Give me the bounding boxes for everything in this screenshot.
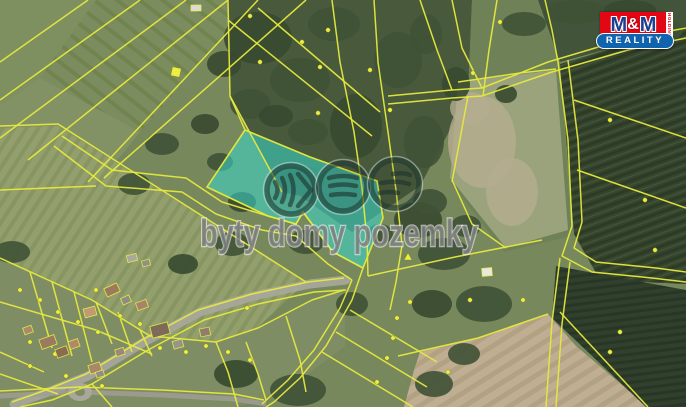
chevrons-icon bbox=[264, 163, 319, 218]
bars-icon bbox=[316, 160, 371, 215]
parcel-marker bbox=[375, 380, 379, 384]
tree-blob bbox=[502, 12, 546, 36]
icon-glyph bbox=[381, 182, 409, 184]
parcel-square-marker bbox=[171, 67, 182, 78]
logo-ampersand: & bbox=[626, 16, 640, 34]
parcel-marker bbox=[226, 350, 230, 354]
parcel-marker bbox=[471, 71, 475, 75]
parcel-marker bbox=[368, 68, 372, 72]
parcel-marker bbox=[388, 108, 392, 112]
logo-reality-text: REALITY bbox=[606, 36, 664, 46]
parcel-marker bbox=[28, 364, 32, 368]
parcel-marker bbox=[468, 298, 472, 302]
tree-blob bbox=[118, 173, 150, 195]
icon-glyph bbox=[329, 176, 357, 178]
parcel-marker bbox=[326, 28, 330, 32]
tree-blob bbox=[270, 374, 326, 406]
parcel-marker bbox=[118, 314, 122, 318]
parcel-marker bbox=[395, 316, 399, 320]
tree-blob bbox=[168, 254, 198, 274]
parcel-marker bbox=[245, 306, 249, 310]
logo-m-right: M bbox=[640, 15, 656, 35]
icon-ring bbox=[319, 163, 367, 211]
parcel-marker bbox=[608, 118, 612, 122]
tree-blob bbox=[191, 114, 219, 134]
watermark-layer bbox=[264, 157, 423, 218]
pale-soil-patch bbox=[486, 158, 538, 226]
parcel-marker bbox=[18, 288, 22, 292]
tree-blob bbox=[336, 292, 368, 316]
parcel-marker bbox=[521, 298, 525, 302]
tree-blob bbox=[259, 105, 293, 127]
building bbox=[199, 327, 210, 337]
parcel-marker bbox=[258, 60, 262, 64]
parcel-marker bbox=[184, 350, 188, 354]
parcel-marker bbox=[248, 358, 252, 362]
tree-blob bbox=[145, 133, 179, 155]
parcel-marker bbox=[56, 310, 60, 314]
parcel-marker bbox=[248, 14, 252, 18]
parcel-marker bbox=[96, 330, 100, 334]
parcel-marker bbox=[391, 336, 395, 340]
parcel-marker bbox=[94, 288, 98, 292]
watermark-text: byty domy pozemky bbox=[200, 213, 478, 255]
icon-glyph bbox=[275, 182, 278, 198]
tree-blob bbox=[448, 343, 480, 365]
parcel-marker bbox=[446, 370, 450, 374]
parcel-marker bbox=[408, 300, 412, 304]
parcel-marker bbox=[316, 111, 320, 115]
parcel-marker bbox=[138, 322, 142, 326]
parcel-marker bbox=[38, 298, 42, 302]
icon-glyph bbox=[331, 194, 355, 195]
layers-icon bbox=[368, 157, 423, 212]
parcel-marker bbox=[204, 344, 208, 348]
parcel-marker bbox=[64, 374, 68, 378]
parcel-marker bbox=[643, 198, 647, 202]
tree-blob bbox=[214, 360, 258, 388]
parcel-marker bbox=[608, 350, 612, 354]
logo-reality-ribbon: REALITY bbox=[596, 33, 674, 49]
tree-blob bbox=[412, 290, 452, 318]
building bbox=[482, 268, 493, 277]
tree-blob bbox=[288, 119, 328, 145]
parcel-marker bbox=[618, 330, 622, 334]
parcel-marker bbox=[158, 346, 162, 350]
logo-m-left: M bbox=[611, 15, 627, 35]
satellite-map-view[interactable]: byty domy pozemky M&M HOLDING REALITY bbox=[0, 0, 686, 407]
parcel-marker bbox=[318, 65, 322, 69]
icon-glyph bbox=[393, 173, 410, 175]
parcel-marker bbox=[653, 248, 657, 252]
parcel-marker bbox=[76, 320, 80, 324]
building bbox=[191, 5, 201, 11]
icon-glyph bbox=[330, 185, 356, 187]
parcel-marker bbox=[28, 340, 32, 344]
tree-blob bbox=[442, 67, 470, 101]
icon-ring bbox=[371, 160, 419, 208]
mm-reality-logo: M&M HOLDING REALITY bbox=[596, 12, 676, 54]
parcel-marker bbox=[100, 384, 104, 388]
tree-blob bbox=[456, 286, 512, 322]
icon-glyph bbox=[380, 192, 398, 193]
parcel-marker bbox=[498, 20, 502, 24]
tree-blob bbox=[410, 14, 442, 54]
parcel-marker bbox=[385, 356, 389, 360]
cadastral-map-canvas[interactable]: byty domy pozemky bbox=[0, 0, 686, 407]
parcel-marker bbox=[300, 40, 304, 44]
